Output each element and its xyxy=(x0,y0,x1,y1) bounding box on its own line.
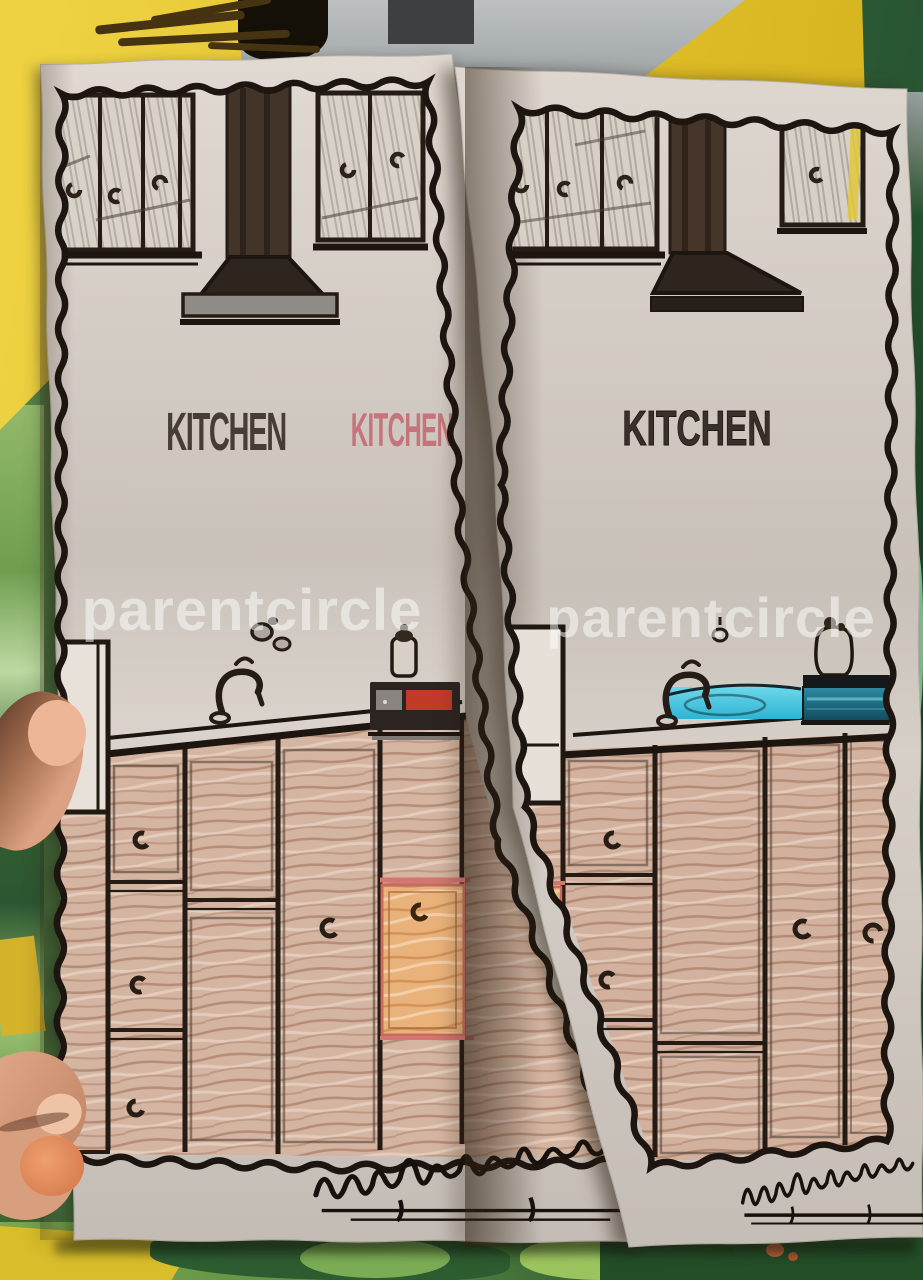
upper-cabinets-right xyxy=(313,93,428,247)
sink-drawing xyxy=(665,685,803,719)
watermark-text: parentcircle xyxy=(546,586,876,649)
watermark-text: parentcircle xyxy=(82,578,423,643)
kitchen-title: KITCHEN xyxy=(166,403,286,463)
kitchen-title: KITCHEN xyxy=(622,401,771,456)
right-worksheet: KITCHEN parentcircle xyxy=(425,45,923,1265)
background-dark-patch xyxy=(388,0,474,44)
thumb-tip xyxy=(28,700,86,766)
right-page-drawing: KITCHEN parentcircle xyxy=(425,45,923,1265)
photo-of-kitchen-worksheets: KITCHEN KITCHEN parentcircle xyxy=(0,0,923,1280)
fingertip xyxy=(20,1136,84,1196)
vent-duct xyxy=(227,78,290,260)
